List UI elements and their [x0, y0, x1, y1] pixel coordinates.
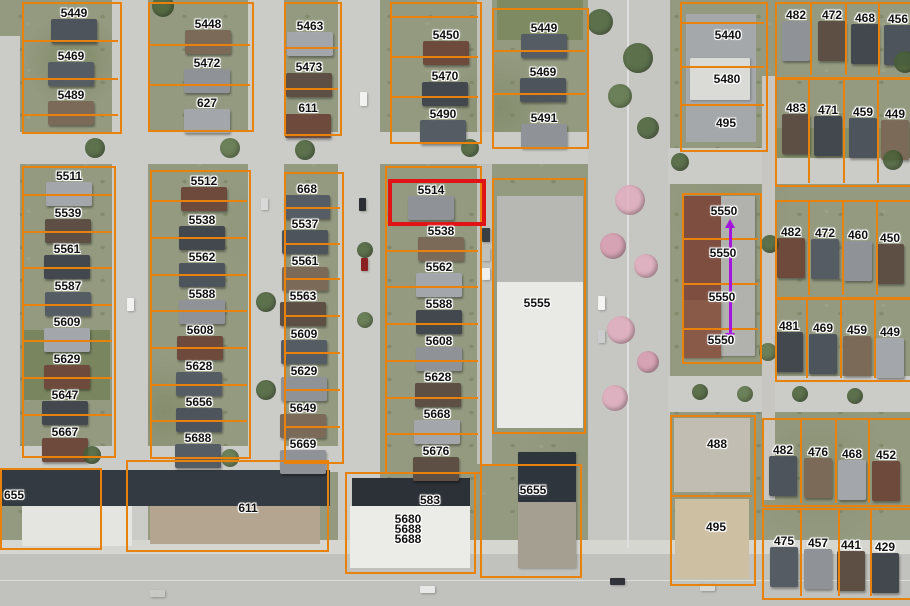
parcel-label: 475 — [774, 535, 794, 547]
parcel-label: 468 — [842, 448, 862, 460]
parcel-label: 5538 — [189, 214, 216, 226]
tree-canopy — [671, 153, 689, 171]
parcel-label: 5562 — [426, 261, 453, 273]
measurement-arrow-line — [729, 228, 732, 333]
parcel-label: 5628 — [186, 360, 213, 372]
parcel-block-outline — [762, 508, 910, 600]
parcel-divider — [682, 328, 758, 330]
building-footprint — [150, 590, 165, 597]
parcel-divider — [492, 50, 585, 52]
parcel-label: 5463 — [297, 20, 324, 32]
building-footprint — [598, 330, 605, 343]
parcel-label: 5512 — [191, 175, 218, 187]
tree-canopy — [607, 316, 635, 344]
parcel-divider — [22, 414, 112, 416]
parcel-label: 5555 — [524, 297, 551, 309]
tree-canopy — [256, 380, 276, 400]
tree-canopy — [637, 117, 659, 139]
parcel-block-outline — [480, 464, 582, 578]
parcel-divider — [22, 78, 118, 80]
building-footprint — [261, 198, 268, 210]
parcel-label: 668 — [297, 183, 317, 195]
parcel-label: 5511 — [56, 170, 82, 182]
parcel-label: 481 — [779, 320, 799, 332]
parcel-divider — [682, 283, 758, 285]
parcel-label: 452 — [876, 449, 896, 461]
parcel-label: 5669 — [290, 438, 317, 450]
parcel-label: 482 — [781, 226, 801, 238]
parcel-label: 472 — [815, 227, 835, 239]
parcel-divider — [800, 508, 802, 596]
parcel-divider — [150, 274, 247, 276]
parcel-divider — [680, 104, 764, 106]
tree-canopy — [608, 84, 632, 108]
parcel-label: 5449 — [531, 22, 558, 34]
parcel-divider — [806, 298, 808, 378]
parcel-label: 469 — [813, 322, 833, 334]
parcel-divider — [808, 78, 810, 183]
parcel-label: 5550 — [710, 247, 737, 259]
parcel-label: 476 — [808, 446, 828, 458]
parcel-label: 583 — [420, 494, 440, 506]
parcel-label: 5472 — [194, 57, 221, 69]
parcel-label: 5491 — [531, 112, 558, 124]
parcel-label: 457 — [808, 537, 828, 549]
parcel-label: 5608 — [426, 335, 453, 347]
parcel-divider — [492, 93, 585, 95]
parcel-label: 460 — [848, 229, 868, 241]
parcel-label: 5587 — [55, 280, 82, 292]
tree-canopy — [602, 385, 628, 411]
parcel-label: 5480 — [714, 73, 741, 85]
building-footprint — [482, 228, 490, 242]
road-segment — [588, 0, 670, 560]
parcel-divider — [840, 298, 842, 378]
parcel-label: 611 — [238, 502, 257, 514]
parcel-label: 5448 — [195, 18, 222, 30]
parcel-divider — [385, 360, 478, 362]
building-footprint — [127, 298, 134, 311]
parcel-label: 5649 — [290, 402, 317, 414]
parcel-divider — [150, 384, 247, 386]
tree-canopy — [623, 43, 653, 73]
parcel-block-outline — [775, 298, 910, 382]
parcel-label: 488 — [707, 438, 727, 450]
parcel-label: 5655 — [520, 484, 547, 496]
parcel-label: 482 — [773, 444, 793, 456]
tree-canopy — [357, 242, 373, 258]
tree-canopy — [256, 292, 276, 312]
building-footprint — [361, 258, 368, 271]
parcel-divider — [800, 418, 802, 503]
parcel-divider — [148, 84, 250, 86]
parcel-label: 5609 — [54, 316, 81, 328]
parcel-label: 5514 — [418, 184, 445, 196]
parcel-divider — [22, 231, 112, 233]
tree-canopy — [737, 386, 753, 402]
parcel-label: 495 — [706, 521, 726, 533]
aerial-map[interactable]: 5449544854635450544948247246845654405480… — [0, 0, 910, 606]
parcel-label: 5550 — [708, 334, 735, 346]
parcel-divider — [22, 377, 112, 379]
building-footprint — [610, 578, 625, 585]
parcel-divider — [22, 304, 112, 306]
tree-canopy — [295, 140, 315, 160]
tree-canopy — [847, 388, 863, 404]
parcel-divider — [868, 418, 870, 503]
parcel-label: 456 — [888, 13, 908, 25]
building-footprint — [598, 296, 605, 310]
parcel-divider — [842, 200, 844, 295]
parcel-label: 5667 — [52, 426, 79, 438]
tree-canopy — [587, 9, 613, 35]
parcel-divider — [150, 200, 247, 202]
parcel-label: 611 — [298, 102, 317, 114]
parcel-divider — [390, 96, 478, 98]
parcel-label: 5469 — [530, 66, 557, 78]
parcel-label: 5629 — [291, 365, 318, 377]
parcel-label: 5676 — [423, 445, 450, 457]
parcel-divider — [284, 352, 340, 354]
parcel-divider — [843, 78, 845, 183]
building-footprint — [482, 268, 490, 280]
tree-canopy — [634, 254, 658, 278]
parcel-divider — [385, 286, 478, 288]
parcel-label: 450 — [880, 232, 900, 244]
parcel-divider — [284, 88, 338, 90]
parcel-label: 482 — [786, 9, 806, 21]
parcel-divider — [870, 508, 872, 596]
parcel-label: 627 — [197, 97, 217, 109]
parcel-block-outline — [284, 172, 344, 464]
parcel-label: 459 — [853, 106, 873, 118]
parcel-label: 5538 — [428, 225, 455, 237]
parcel-divider — [284, 243, 340, 245]
parcel-label: 468 — [855, 12, 875, 24]
parcel-label: 5668 — [424, 408, 451, 420]
parcel-label: 5629 — [54, 353, 81, 365]
parcel-divider — [284, 47, 338, 49]
parcel-label: 5449 — [61, 7, 88, 19]
parcel-label: 5563 — [290, 290, 317, 302]
parcel-label: 459 — [847, 324, 867, 336]
parcel-label: 495 — [716, 117, 736, 129]
parcel-label: 5490 — [430, 108, 457, 120]
parcel-divider — [385, 397, 478, 399]
parcel-block-outline — [0, 468, 102, 550]
building-footprint — [360, 92, 367, 106]
parcel-label: 5473 — [296, 61, 323, 73]
parcel-label: 5688 — [395, 533, 422, 545]
parcel-divider — [284, 426, 340, 428]
parcel-label: 449 — [885, 108, 905, 120]
tree-canopy — [615, 185, 645, 215]
parcel-divider — [22, 194, 112, 196]
parcel-label: 5588 — [189, 288, 216, 300]
tree-canopy — [600, 233, 626, 259]
parcel-divider — [390, 56, 478, 58]
parcel-divider — [682, 238, 758, 240]
building-footprint — [482, 248, 490, 261]
parcel-divider — [22, 340, 112, 342]
parcel-divider — [680, 22, 764, 24]
parcel-label: 5550 — [711, 205, 738, 217]
parcel-divider — [385, 323, 478, 325]
measurement-arrow-head-up — [725, 219, 735, 228]
parcel-divider — [22, 114, 118, 116]
parcel-label: 5608 — [187, 324, 214, 336]
tree-canopy — [692, 384, 708, 400]
parcel-label: 5469 — [58, 50, 85, 62]
parcel-label: 5562 — [189, 251, 216, 263]
parcel-label: 5470 — [432, 70, 459, 82]
parcel-label: 5588 — [426, 298, 453, 310]
parcel-label: 5539 — [55, 207, 82, 219]
parcel-label: 472 — [822, 9, 842, 21]
parcel-label: 5550 — [709, 291, 736, 303]
road-segment — [627, 0, 629, 548]
parcel-block-outline — [126, 460, 329, 552]
parcel-label: 471 — [818, 104, 838, 116]
parcel-divider — [284, 389, 340, 391]
building-footprint — [359, 198, 366, 211]
road-segment — [0, 36, 20, 466]
parcel-divider — [22, 40, 118, 42]
parcel-divider — [150, 237, 247, 239]
parcel-divider — [385, 250, 478, 252]
parcel-divider — [284, 207, 340, 209]
parcel-divider — [150, 347, 247, 349]
parcel-divider — [284, 315, 340, 317]
parcel-divider — [810, 2, 812, 75]
parcel-divider — [385, 433, 478, 435]
tree-canopy — [357, 312, 373, 328]
tree-canopy — [637, 351, 659, 373]
parcel-divider — [838, 508, 840, 596]
parcel-label: 655 — [4, 489, 24, 501]
parcel-label: 5561 — [292, 255, 319, 267]
building-footprint — [420, 586, 435, 593]
parcel-label: 449 — [880, 326, 900, 338]
parcel-divider — [845, 2, 847, 75]
parcel-divider — [150, 310, 247, 312]
parcel-label: 5489 — [58, 89, 85, 101]
parcel-divider — [670, 495, 752, 497]
parcel-divider — [680, 66, 764, 68]
parcel-label: 5647 — [52, 389, 79, 401]
parcel-divider — [390, 16, 478, 18]
parcel-divider — [150, 420, 247, 422]
parcel-label: 5656 — [186, 396, 213, 408]
parcel-label: 441 — [841, 539, 861, 551]
parcel-divider — [148, 44, 250, 46]
parcel-label: 5450 — [433, 29, 460, 41]
parcel-divider — [22, 267, 112, 269]
tree-canopy — [220, 138, 240, 158]
parcel-label: 429 — [875, 541, 895, 553]
parcel-label: 5628 — [425, 371, 452, 383]
parcel-divider — [878, 2, 880, 75]
parcel-label: 5537 — [292, 218, 319, 230]
tree-canopy — [792, 386, 808, 402]
parcel-divider — [808, 200, 810, 295]
parcel-label: 5609 — [291, 328, 318, 340]
map-canvas[interactable]: 5449544854635450544948247246845654405480… — [0, 0, 910, 606]
parcel-divider — [835, 418, 837, 503]
parcel-divider — [876, 200, 878, 295]
parcel-label: 5440 — [715, 29, 742, 41]
parcel-divider — [877, 78, 879, 183]
parcel-label: 5561 — [54, 243, 81, 255]
parcel-divider — [284, 278, 340, 280]
parcel-divider — [874, 298, 876, 378]
tree-canopy — [85, 138, 105, 158]
parcel-label: 483 — [786, 102, 806, 114]
parcel-label: 5688 — [185, 432, 212, 444]
